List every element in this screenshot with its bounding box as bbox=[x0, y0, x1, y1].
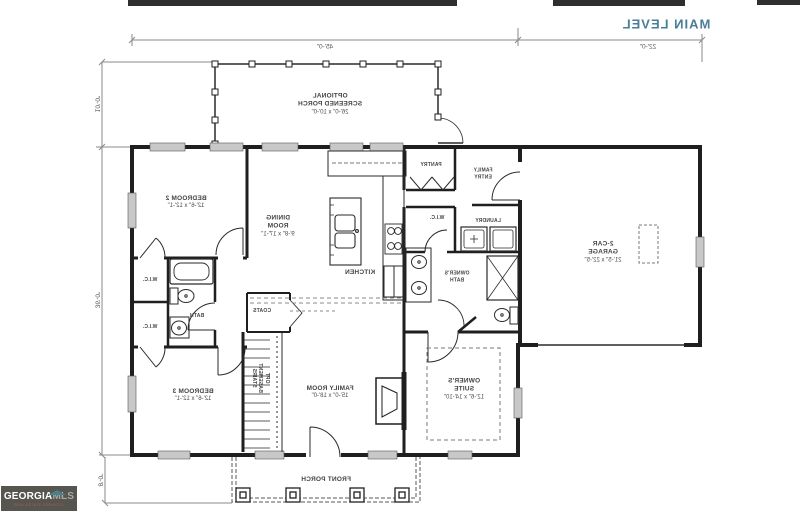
garage-attic-access-dashed bbox=[639, 225, 658, 263]
label-front-porch: FRONT PORCH bbox=[301, 476, 351, 484]
label-kitchen: KITCHEN bbox=[345, 269, 375, 277]
dim-top-garage: 22'-0" bbox=[640, 44, 657, 51]
floor-plan-page: MAIN LEVEL 45'-0" 22'-0" 10'-0" 36'-0" 8… bbox=[0, 0, 800, 517]
logo-tagline: REAL ESTATE SERVICES bbox=[14, 503, 64, 507]
fireplace-icon bbox=[376, 372, 404, 430]
label-family-entry: FAMILY ENTRY bbox=[473, 168, 492, 181]
toilet-icon bbox=[170, 288, 194, 304]
fridge-icon bbox=[384, 266, 404, 297]
bathtub-icon bbox=[170, 259, 213, 284]
sink-icon bbox=[170, 317, 189, 338]
dim-left-main: 36'-0" bbox=[94, 292, 101, 309]
label-family-room: FAMILY ROOM 15'-0" x 18'-0" bbox=[306, 385, 353, 401]
washer-dryer-icons bbox=[461, 227, 516, 251]
label-coats: COATS bbox=[253, 308, 271, 315]
porch-columns bbox=[236, 488, 409, 502]
label-bedroom3: BEDROOM 3 12'-6" x 12'-1" bbox=[172, 388, 213, 404]
dim-left-screened-porch: 10'-0" bbox=[94, 96, 101, 113]
logo-text-georgia: GEORGIA bbox=[4, 491, 53, 502]
label-bedroom2: BEDROOM 2 12'-6" x 12'-1" bbox=[165, 195, 206, 211]
faucet-icon bbox=[356, 230, 359, 233]
label-hall-bath: BATH bbox=[190, 313, 204, 320]
house-roof-icon bbox=[48, 490, 66, 495]
label-laundry: LAUNDRY bbox=[475, 218, 501, 225]
owners-vanity bbox=[406, 248, 431, 302]
owners-toilet-icon bbox=[495, 307, 519, 324]
label-wic-upper: W.I.C. bbox=[143, 277, 158, 284]
label-pantry: PANTRY bbox=[420, 162, 441, 169]
kitchen-island bbox=[330, 198, 361, 265]
label-stairs: OPT BASEMENT STAIRS bbox=[250, 363, 270, 393]
label-wic-lower: W.I.C. bbox=[143, 324, 158, 331]
label-owners-bath: OWNER'S BATH bbox=[444, 271, 469, 284]
interior-walls bbox=[132, 147, 518, 455]
label-owners-suite: OWNER'S SUITE 12'-6" x 14'-10" bbox=[444, 378, 484, 403]
dim-left-front-porch: 8'-0" bbox=[97, 474, 104, 487]
label-wic-owners: W.I.C. bbox=[430, 215, 445, 222]
label-screened-porch: OPTIONAL SCREENED PORCH 26'-0" x 10'-0" bbox=[298, 93, 362, 118]
floor-plan-drawing bbox=[0, 0, 800, 517]
georgia-mls-logo: GEORGIA MLS REAL ESTATE SERVICES bbox=[1, 486, 77, 511]
dimension-lines bbox=[96, 28, 705, 506]
shower-icon bbox=[487, 256, 518, 300]
dim-top-main: 45'-0" bbox=[317, 44, 334, 51]
label-garage: 2-CAR GARAGE 21'-5" x 22'-5" bbox=[585, 241, 622, 266]
page-title: MAIN LEVEL bbox=[622, 17, 711, 32]
floor-transition-line bbox=[250, 298, 404, 303]
range-icon bbox=[385, 224, 402, 254]
label-dining: DINING ROOM 9'-8" x 17'-1" bbox=[261, 215, 295, 240]
